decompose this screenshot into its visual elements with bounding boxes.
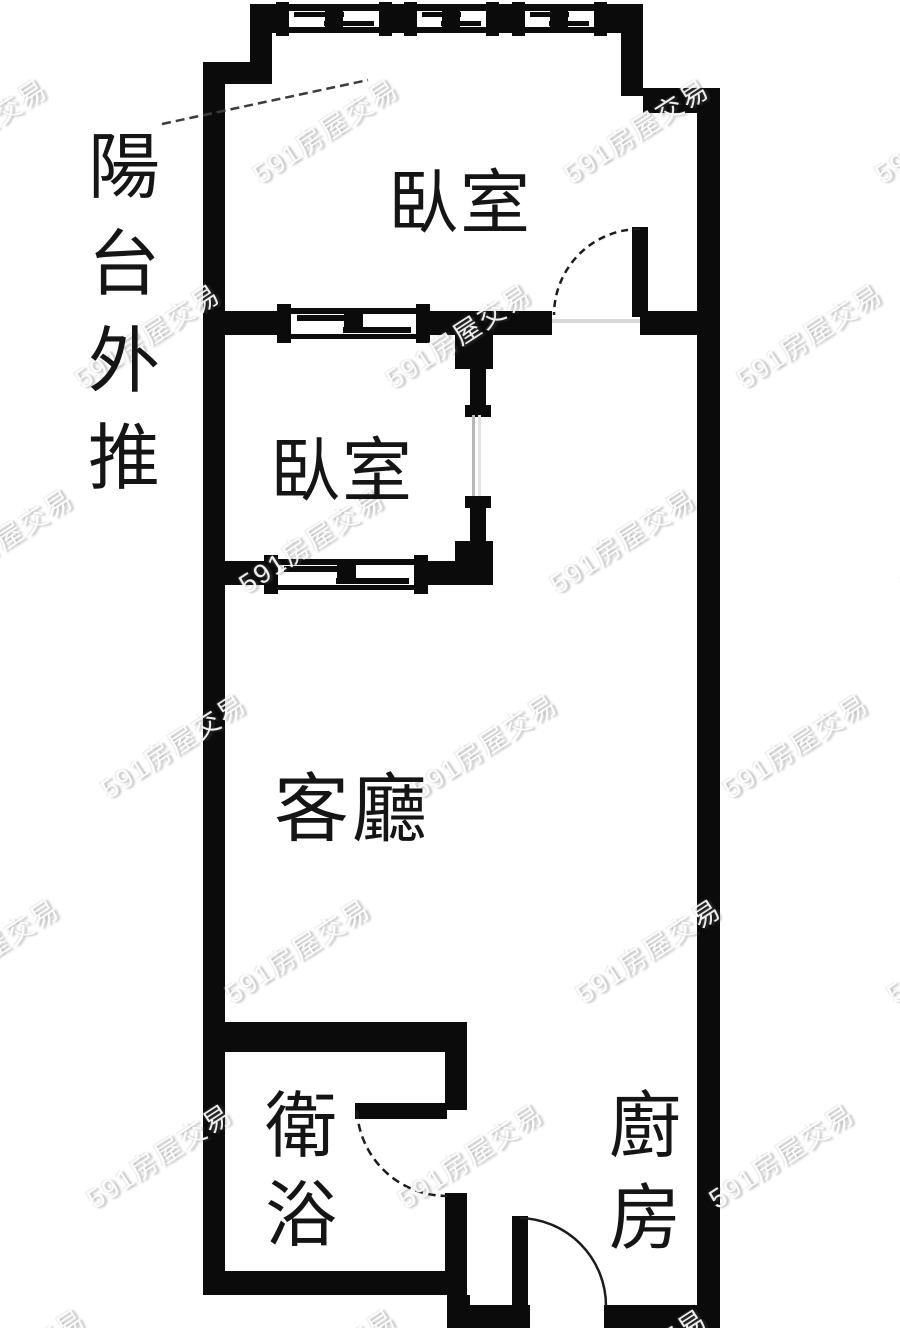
window-bedroom-mid-top <box>277 304 430 343</box>
bedroom-mid-right-wall <box>455 333 493 566</box>
floorplan: 陽台外推 臥室 臥室 客廳 衛浴 廚房 591房屋交易591房屋交易591房屋交… <box>0 0 900 1328</box>
door-leaf <box>632 227 648 317</box>
wall-window-right <box>426 561 493 585</box>
wall-step-topright-vertical <box>621 4 643 96</box>
room-label-balcony-note: 陽台外推 <box>84 120 164 508</box>
door-swing-arc <box>554 229 640 315</box>
door-swing-arc <box>357 1111 447 1196</box>
door-swing-arc <box>520 1218 606 1306</box>
wall-bathroom-right-lower <box>445 1193 467 1277</box>
door-entry <box>512 1216 606 1308</box>
wall-bathroom-top <box>205 1022 467 1052</box>
sliding-door-track-line-2 <box>478 415 481 496</box>
wall-divider-mid <box>428 311 552 335</box>
window-balcony-1 <box>276 2 392 36</box>
room-label-bedroom-middle: 臥室 <box>270 415 414 516</box>
wall-bathroom-right-upper <box>445 1046 467 1110</box>
wall-bottom-left-of-entry <box>467 1305 530 1328</box>
wall-divider-right <box>640 311 697 335</box>
door-bathroom <box>355 1103 447 1196</box>
wall-divider-left <box>225 311 280 335</box>
wall-left <box>203 62 225 1295</box>
room-label-living-room: 客廳 <box>274 748 430 857</box>
room-label-bedroom-top: 臥室 <box>388 147 532 248</box>
wall-bottom-right-of-entry <box>604 1305 720 1328</box>
door-leaf <box>355 1103 447 1119</box>
wall-window-left <box>225 561 267 585</box>
window-balcony-2 <box>404 2 499 36</box>
balcony-leader-line <box>162 80 368 124</box>
sliding-door-track-line-1 <box>472 415 475 496</box>
room-label-bathroom: 衛浴 <box>262 1083 340 1261</box>
room-label-kitchen: 廚房 <box>606 1081 684 1265</box>
wall-bathroom-step-connector <box>447 1295 470 1328</box>
wall-right <box>697 88 720 1328</box>
window-balcony-3 <box>512 2 607 36</box>
wall-stub-upper-wide <box>455 333 493 369</box>
door-bedroom-top <box>552 227 648 321</box>
window-bedroom-mid-bottom <box>264 555 428 594</box>
door-leaf <box>512 1216 528 1308</box>
wall-bathroom-bottom <box>205 1271 467 1295</box>
wall-stub-lower-narrow <box>470 498 486 544</box>
